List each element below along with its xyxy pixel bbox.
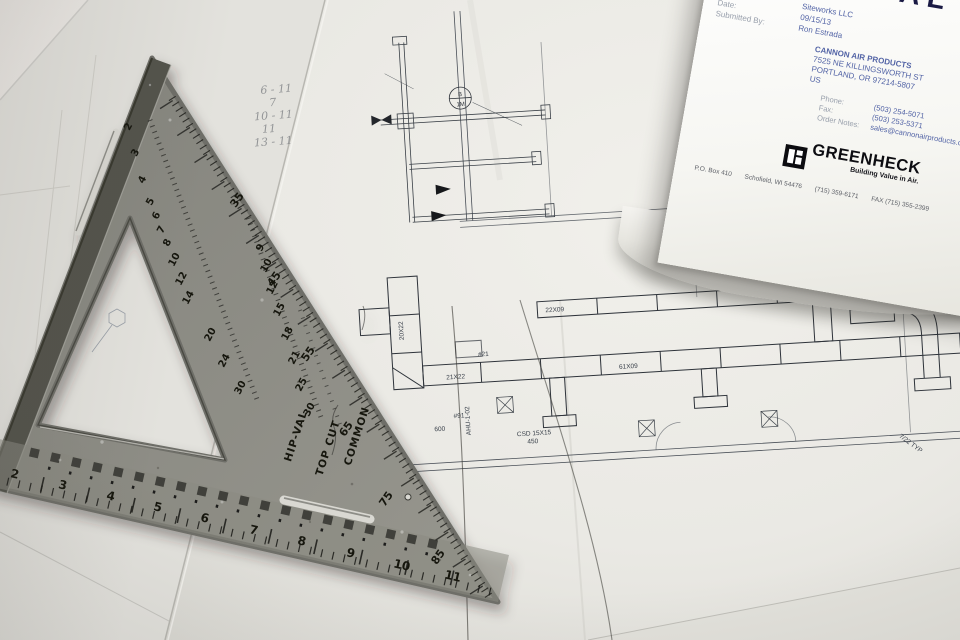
speed-square: 2 3 4 5 6 7 8 9 10 11 2 3 4 5 6 7 8 10 — [0, 0, 960, 640]
lip-highlight — [7, 65, 171, 493]
photo-scene: B 1M 21X22 20X22 61X09 22X09 16X10 18X10… — [0, 0, 960, 640]
left-lip-flange — [0, 58, 171, 493]
hang-hole — [405, 494, 411, 500]
